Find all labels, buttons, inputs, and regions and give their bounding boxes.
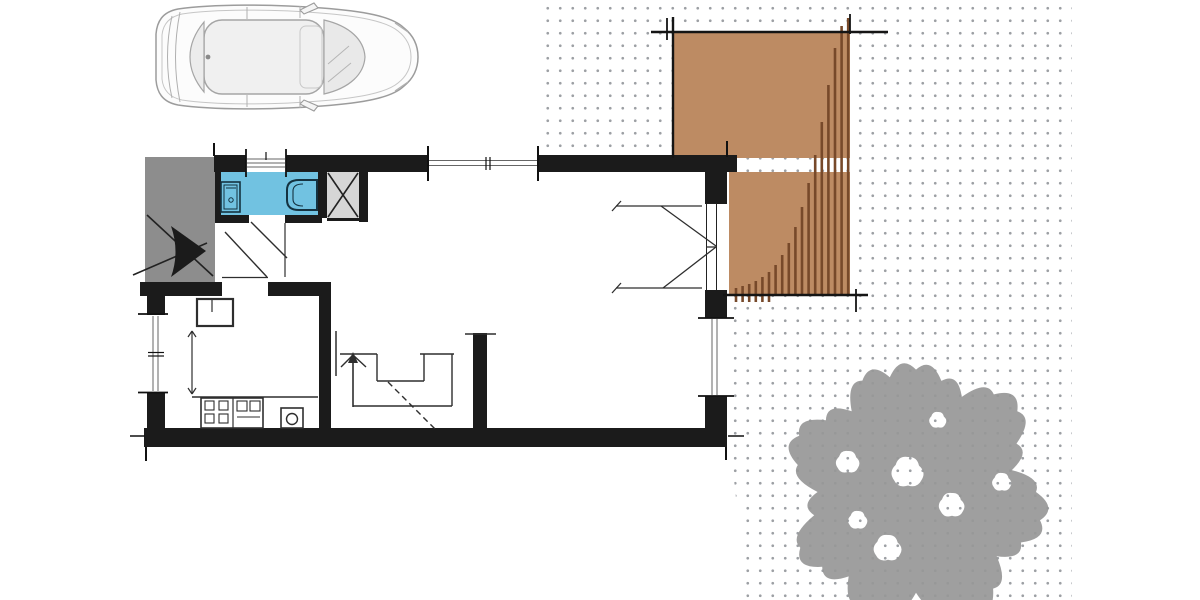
shower-x-mark	[328, 173, 358, 217]
sink-basin	[287, 414, 298, 425]
entry-arrow-head	[171, 226, 206, 277]
french-door-swing	[612, 201, 717, 293]
interior-door-lines	[222, 222, 336, 376]
deck-slats	[736, 18, 848, 302]
wall-tick-marks	[130, 141, 744, 461]
deck-border-lines	[651, 14, 888, 312]
car-top-view	[152, 2, 422, 112]
floor-plan-canvas	[0, 0, 1200, 600]
refrigerator-box	[197, 299, 233, 326]
car-antenna	[206, 55, 211, 60]
kitchen-fixtures	[188, 299, 318, 428]
staircase	[340, 334, 496, 429]
bathroom-fixtures	[221, 180, 317, 212]
entry-arrow	[133, 215, 213, 277]
